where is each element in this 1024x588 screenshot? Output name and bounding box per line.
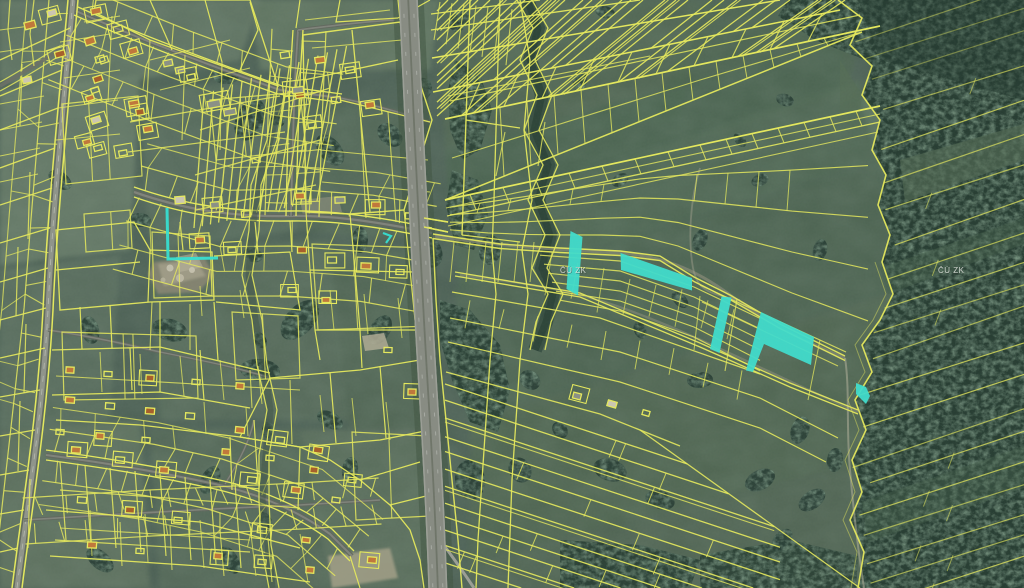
svg-text:ČÚ ZK: ČÚ ZK [938, 266, 965, 275]
svg-text:ČÚ ZK: ČÚ ZK [560, 266, 587, 275]
